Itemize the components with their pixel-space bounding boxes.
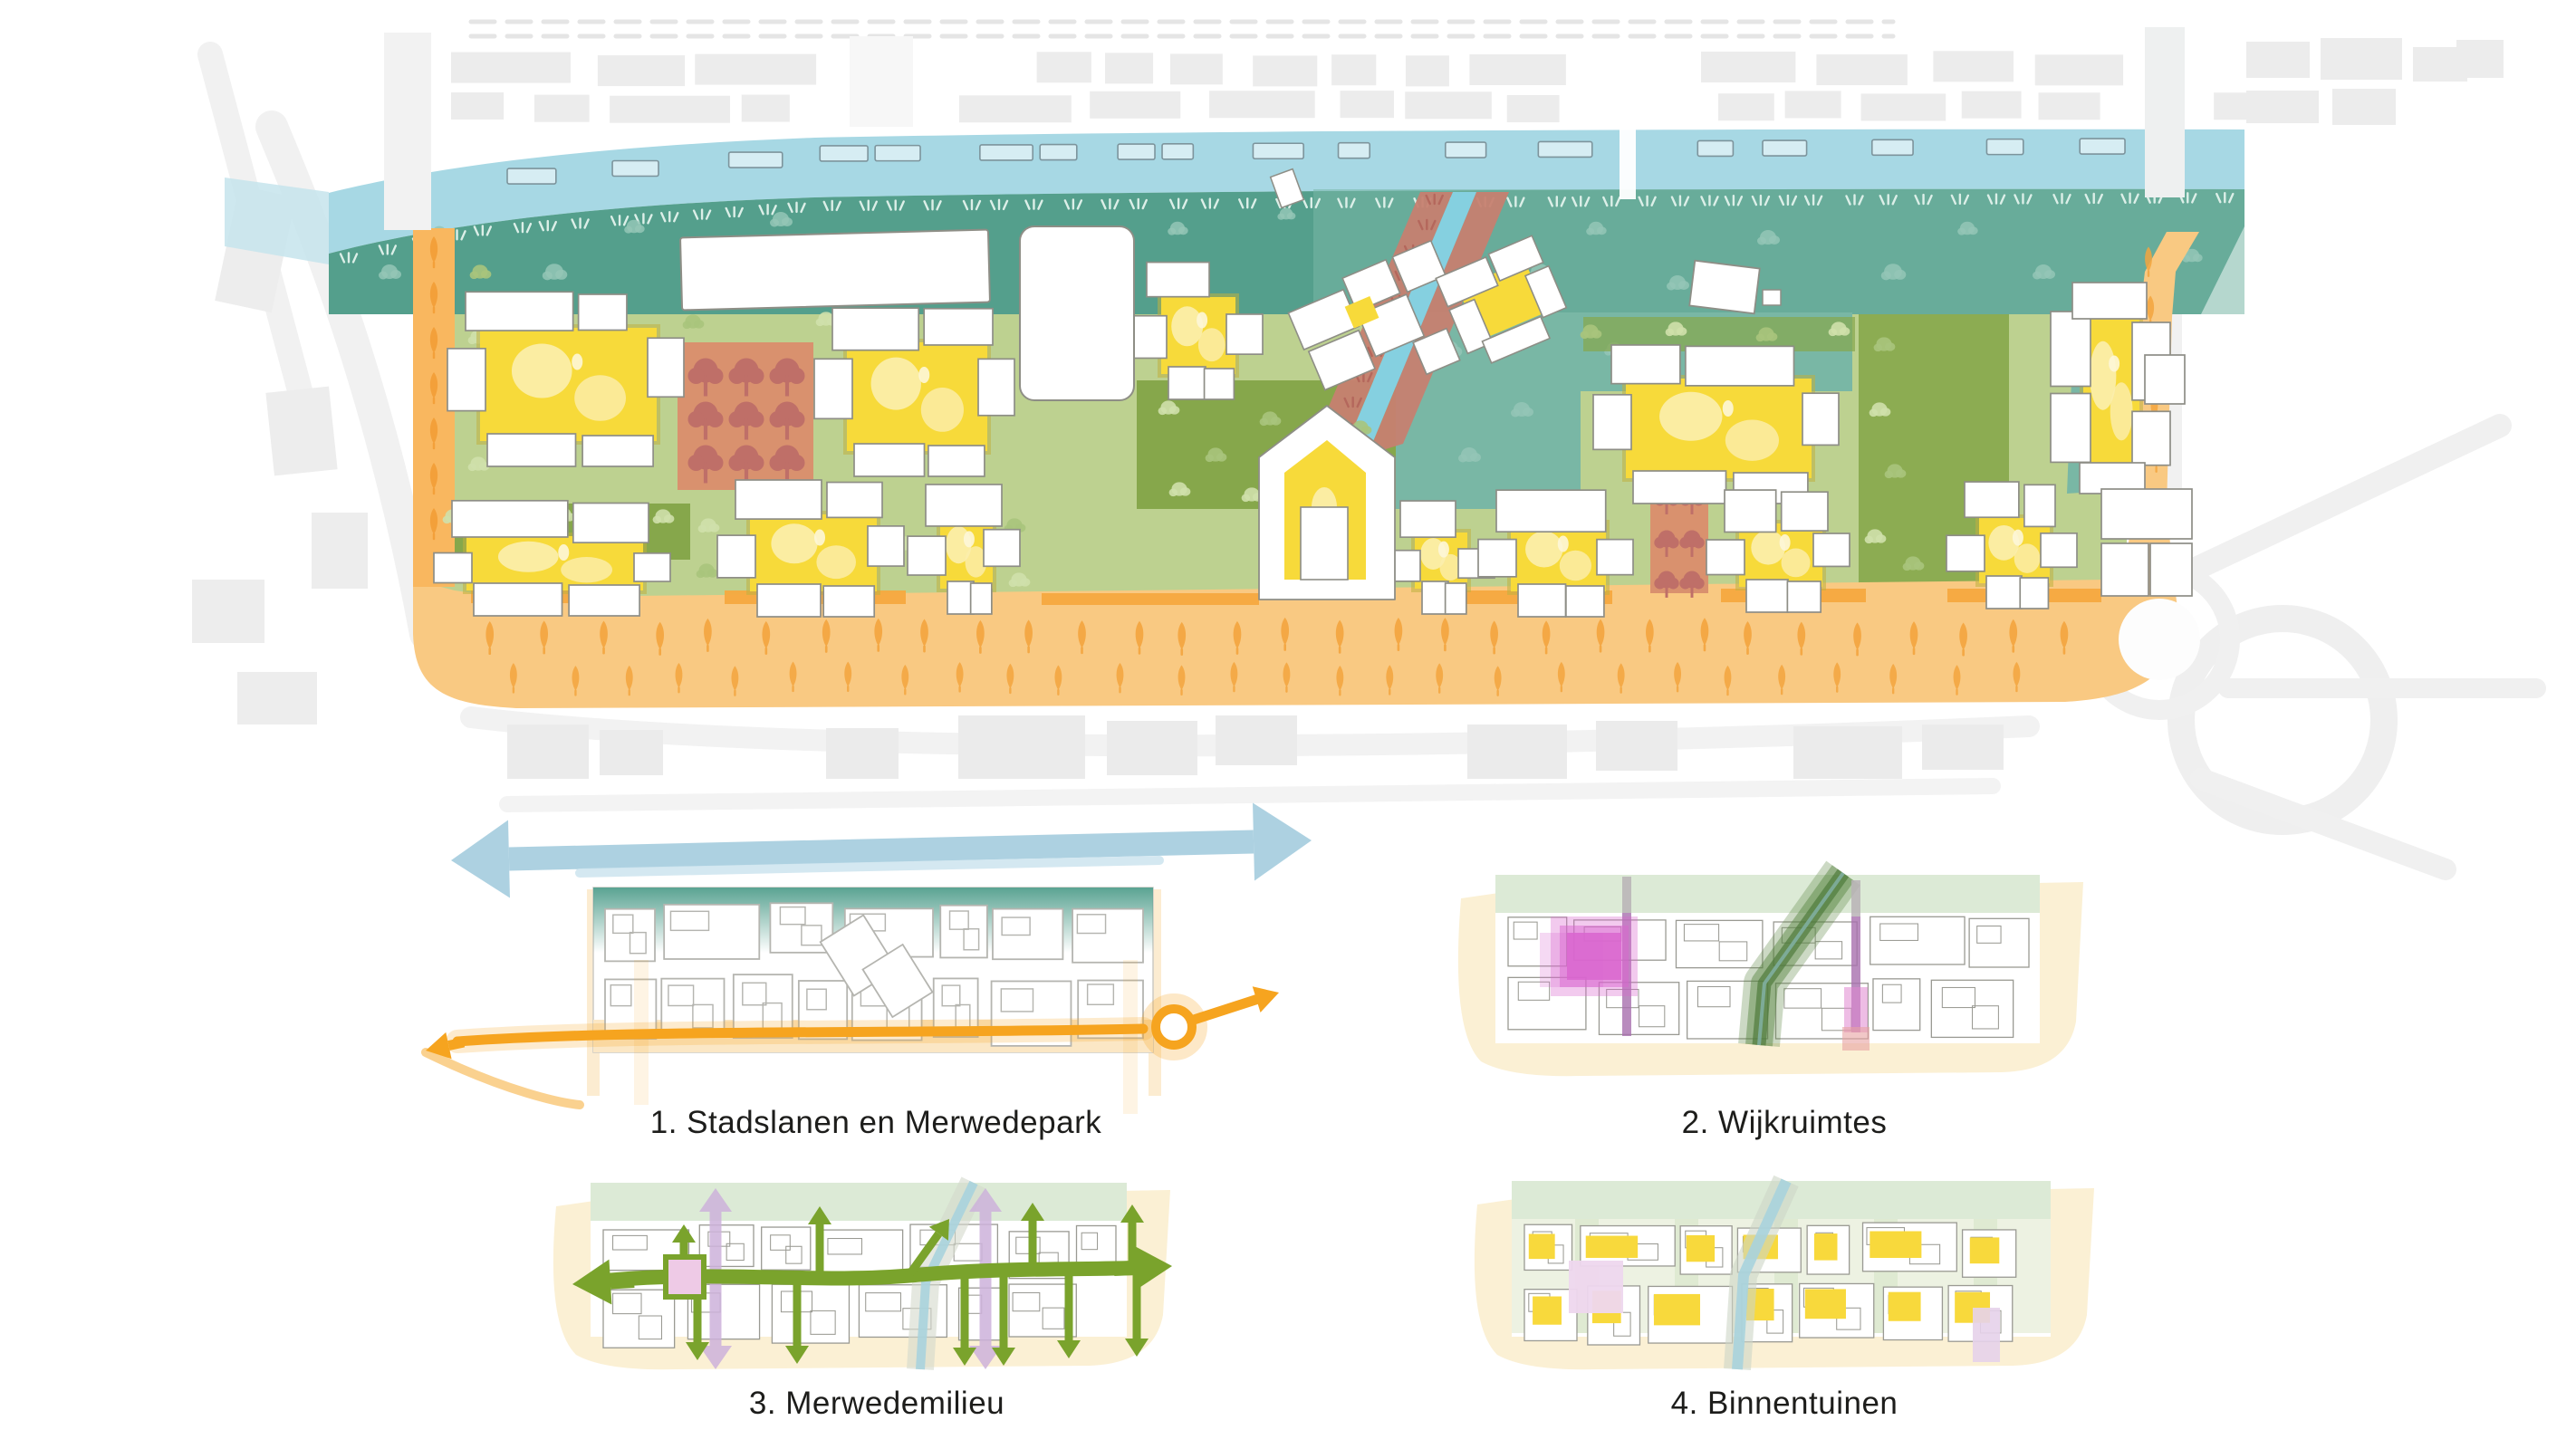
plaza-terracotta-west — [678, 342, 813, 490]
merwede-urban-plan-page: 1. Stadslanen en Merwedepark 2. Wijkruim… — [0, 0, 2576, 1449]
caption-binnentuinen: 4. Binnentuinen — [1671, 1386, 1898, 1422]
water-lane-arrow — [451, 802, 1312, 897]
caption-wijkruimtes: 2. Wijkruimtes — [1682, 1105, 1888, 1141]
caption-merwedemilieu: 3. Merwedemilieu — [749, 1386, 1004, 1422]
block — [814, 308, 1014, 476]
square-east — [1842, 987, 1870, 1051]
diagram-stadslanen-map — [426, 802, 1312, 1114]
masterplan-map — [225, 27, 2244, 708]
square-west — [1540, 916, 1638, 996]
mini-map — [587, 888, 1161, 1096]
diagram-merwedemilieu-map — [553, 1183, 1172, 1369]
diagram-wijkruimtes-map — [1458, 873, 2083, 1076]
diagram-binnentuinen-map — [1475, 1181, 2094, 1369]
caption-stadslanen: 1. Stadslanen en Merwedepark — [650, 1105, 1101, 1141]
plan-graphic — [0, 0, 2576, 1449]
